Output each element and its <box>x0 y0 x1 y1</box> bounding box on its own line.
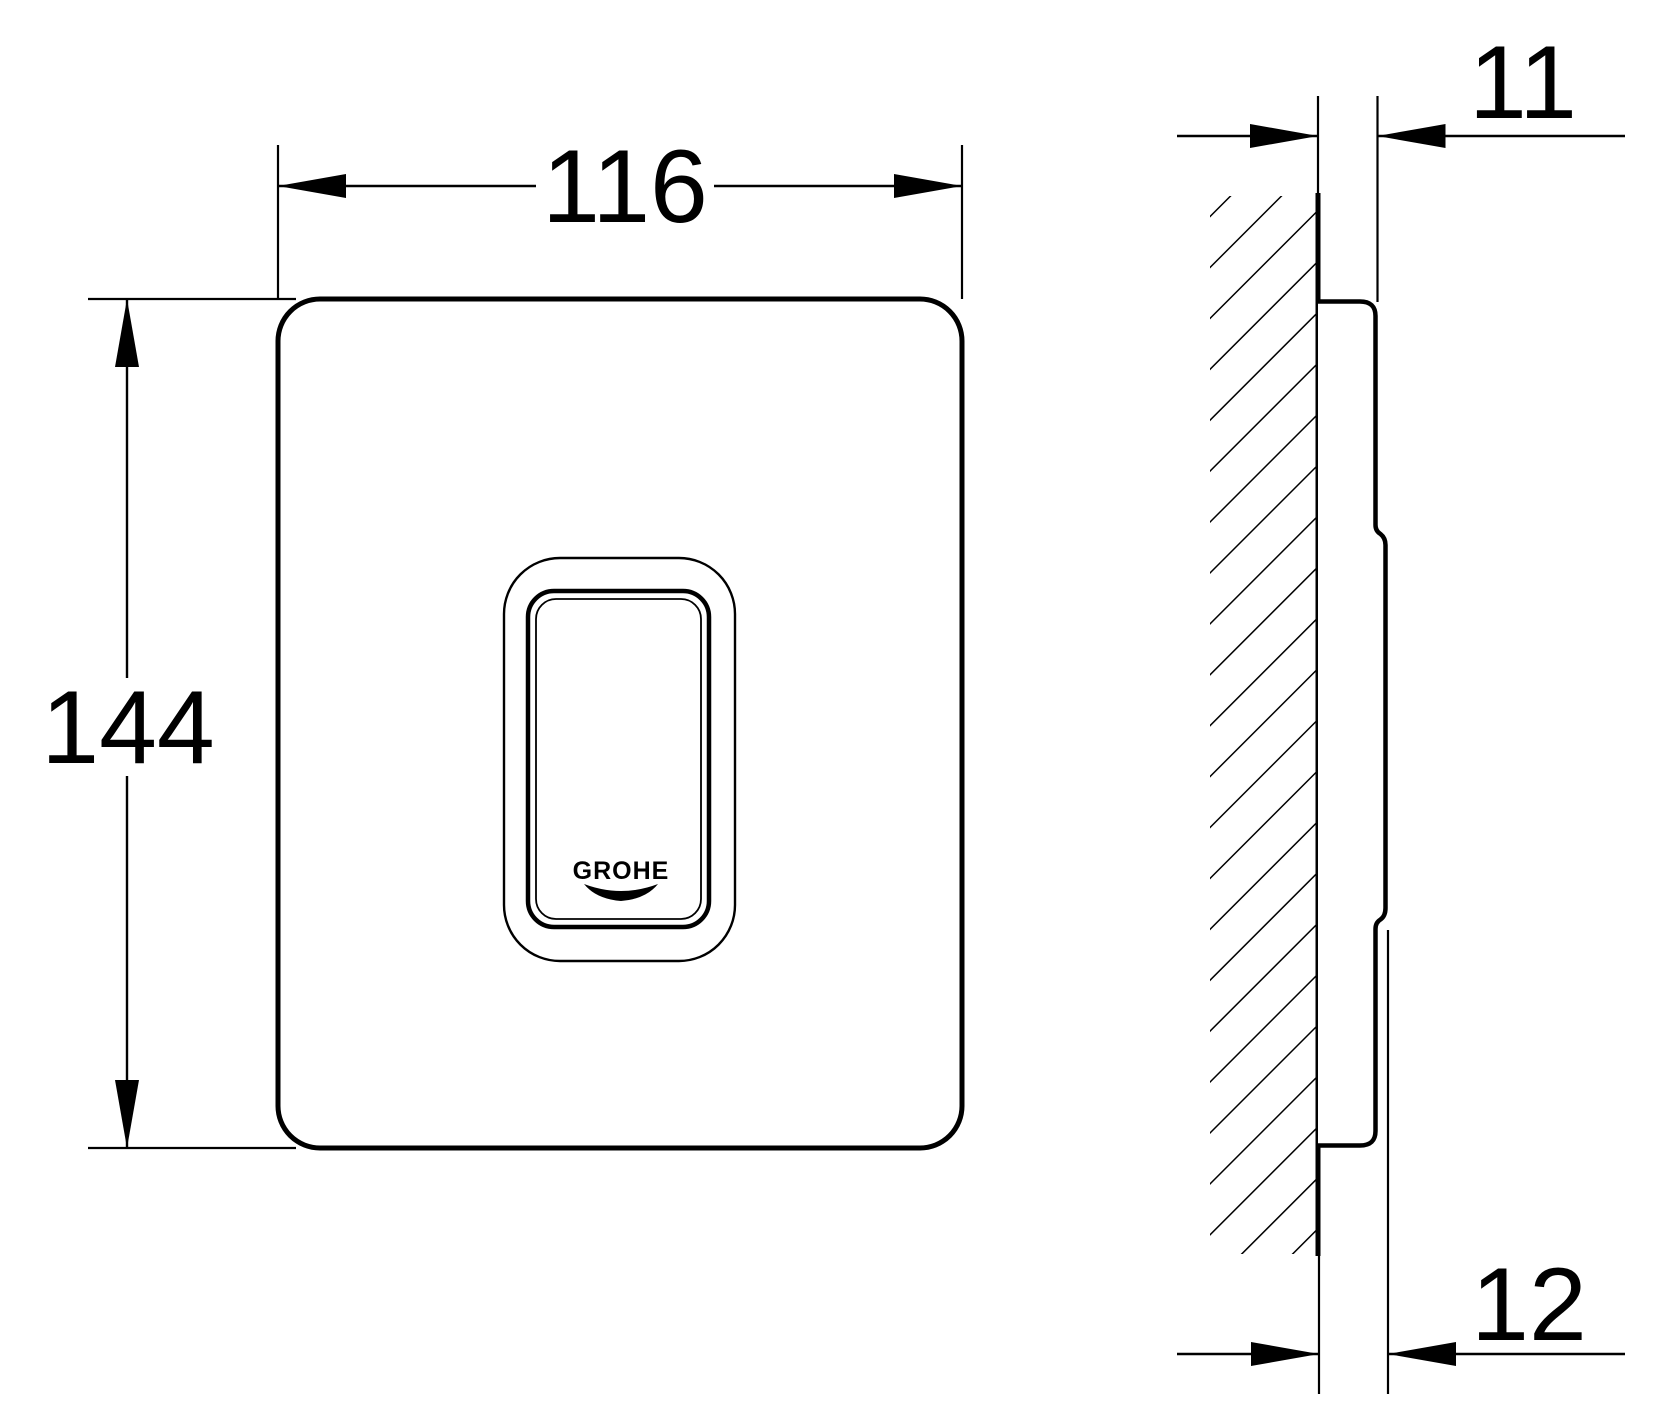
side-view: 11 12 <box>1177 25 1625 1394</box>
flush-plate-side-profile <box>1318 302 1386 1146</box>
grohe-logo-text: GROHE <box>573 857 670 885</box>
protrusion-dimension-label: 11 <box>1469 25 1577 141</box>
arrowhead-left-icon <box>278 174 346 198</box>
arrowhead-left-icon <box>1388 1342 1456 1366</box>
arrowhead-right-icon <box>894 174 962 198</box>
front-view: GROHE 116 144 <box>41 129 962 1148</box>
technical-drawing-page: GROHE 116 144 <box>0 0 1671 1423</box>
width-dimension-label: 116 <box>542 129 708 245</box>
height-dimension-label: 144 <box>41 670 215 786</box>
wall-hatching <box>1210 196 1316 1254</box>
flush-plate-technical-drawing: GROHE 116 144 <box>0 0 1671 1423</box>
arrowhead-left-icon <box>1378 124 1446 148</box>
width-dimension: 116 <box>278 129 962 299</box>
height-dimension: 144 <box>41 299 296 1148</box>
arrowhead-down-icon <box>115 1080 139 1148</box>
arrowhead-up-icon <box>115 299 139 367</box>
arrowhead-right-icon <box>1251 1342 1319 1366</box>
total-depth-dimension-label: 12 <box>1471 1247 1587 1363</box>
arrowhead-right-icon <box>1250 124 1318 148</box>
flush-plate-front-outline <box>278 299 962 1148</box>
